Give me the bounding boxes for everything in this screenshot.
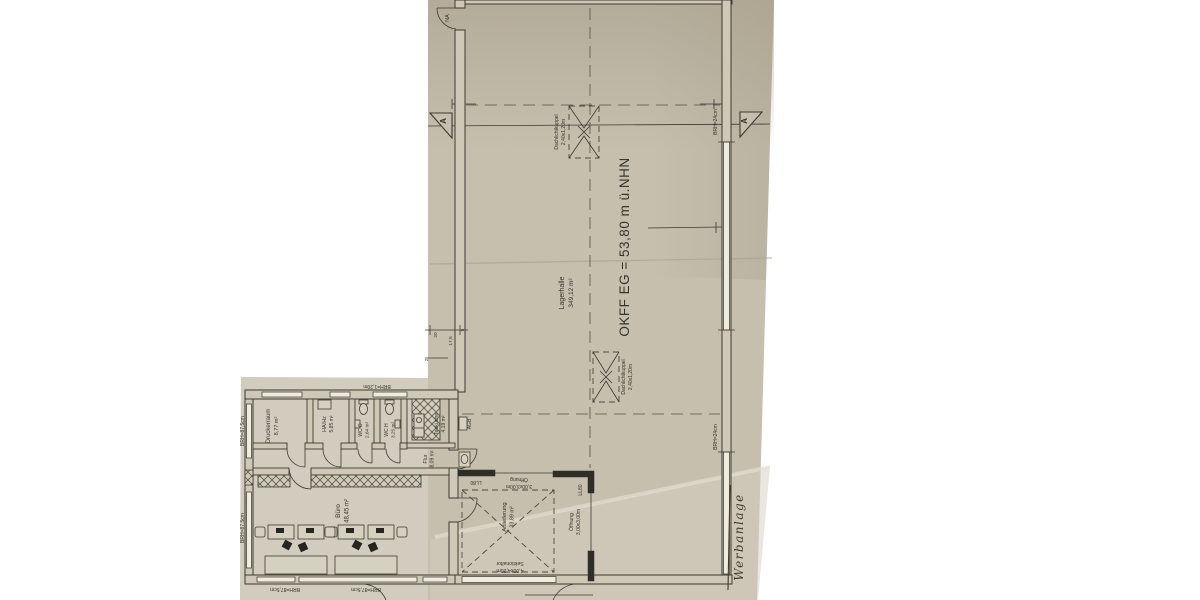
sill-office-left-upper: BRH=87,5cm	[240, 416, 246, 446]
office-window-top-2	[330, 392, 350, 397]
opening-right-size: 3,00x3,00m	[576, 509, 582, 535]
skylight-2-label: Dachlichtkuppel	[621, 359, 627, 394]
room-wcd-area: 2,64 m²	[365, 421, 371, 438]
wall-hatch-left	[245, 470, 253, 485]
paper-shading-right	[650, 0, 774, 280]
glazed-partition-main	[311, 475, 421, 487]
room-teekueche-name: Teeküche	[434, 413, 440, 435]
photo-of-floor-plan: A A NA Dachlichtkuppel 2,40x1,20m	[0, 0, 1200, 600]
sectional-door	[462, 577, 556, 583]
emergency-exit-label: NA	[445, 14, 451, 22]
sill-office-bottom-right: BRH=87,5cm	[351, 586, 381, 592]
room-wch-name: WC H	[384, 423, 390, 437]
sectional-door-name: Sektionaltor	[496, 560, 524, 566]
skylight-1-label: Dachlichtkuppel	[554, 114, 560, 149]
opening-top-size: 3,00x3,00m	[506, 483, 532, 489]
dim-a: 5	[460, 328, 466, 331]
sectional-door-size: 4,00x4,20m	[496, 567, 523, 573]
room-druckerraum-area: 8,77 m²	[274, 417, 280, 436]
sill-right-upper: BRH=24cm	[713, 109, 719, 135]
dim-b: 20	[433, 332, 439, 338]
sill-office-bottom-left: BRH=87,5cm	[270, 586, 300, 592]
opening-right-name: Öffnung	[568, 513, 575, 531]
room-buero-area: 48,45 m²	[345, 499, 351, 523]
office-window-bottom-1	[257, 577, 295, 582]
skylight-2-size: 2,40x1,20m	[628, 364, 634, 390]
sill-office-top: BRH=1,20m	[363, 383, 390, 389]
sill-right-lower: BRH=24cm	[713, 424, 719, 450]
dim-d: 2	[424, 358, 430, 361]
floor-plan-drawing: A A NA Dachlichtkuppel 2,40x1,20m	[0, 0, 1200, 600]
office-window-bottom-3	[423, 577, 447, 582]
room-anlieferung-area: 33,89 m²	[510, 506, 516, 527]
hall-level-note: OKFF EG = 53,80 m ü.NHN	[617, 157, 632, 336]
room-flur-name: Flur	[423, 454, 429, 463]
room-flur-area: 8,09 m²	[430, 450, 436, 467]
room-buero-name: Büro	[335, 504, 342, 518]
room-wch-area: 3,25 m²	[391, 421, 397, 438]
room-wcd-name: WC D	[358, 423, 364, 437]
room-druckerraum-name: Druckerraum	[266, 409, 272, 444]
sill-office-left-lower: BRH=87,5cm	[240, 513, 246, 543]
hall-name: Lagerhalle	[559, 277, 566, 310]
room-teekueche-area: 4,19 m²	[441, 415, 447, 432]
section-letter-right: A	[740, 118, 749, 124]
utility-sink-label: AGB	[467, 418, 473, 429]
opening-top-name: Öffnung	[510, 476, 528, 483]
utility-sink	[459, 417, 467, 430]
office-window-left-2	[247, 492, 252, 568]
office-window-top-3	[373, 392, 407, 397]
handwriting-text: Werbanlage	[732, 493, 746, 581]
opening-top-lintel: LL80	[470, 479, 481, 485]
glazed-partition-left	[258, 475, 290, 487]
office-window-top-1	[262, 392, 302, 397]
room-hahz-name: HA/Hz	[322, 416, 328, 432]
skylight-1-size: 2,40x1,20m	[561, 119, 567, 145]
hall-window-right-upper	[724, 142, 730, 330]
room-hahz-area: 5,85 m²	[329, 415, 335, 432]
hall-area: 349,12 m²	[568, 278, 575, 308]
dim-c: 17,5	[448, 336, 454, 346]
office-window-bottom-2	[299, 577, 417, 582]
room-anlieferung-name: Anlieferung	[502, 502, 508, 531]
section-letter-left: A	[439, 118, 448, 124]
office-window-left-1	[247, 404, 252, 458]
opening-right-lintel: LL80	[578, 484, 584, 495]
